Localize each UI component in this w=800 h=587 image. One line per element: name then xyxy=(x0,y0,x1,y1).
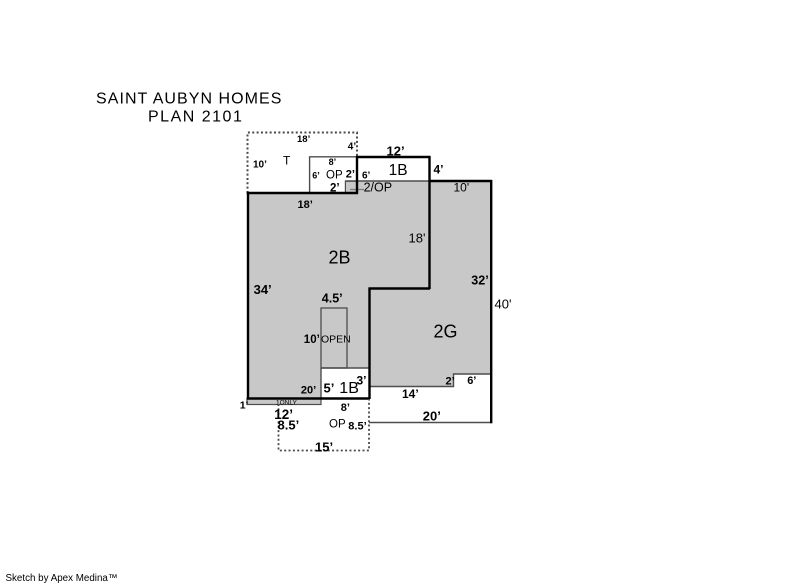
svg-text:8.5’: 8.5’ xyxy=(348,421,366,433)
svg-text:4’: 4’ xyxy=(434,162,444,176)
svg-text:OP: OP xyxy=(326,169,343,181)
svg-text:2’: 2’ xyxy=(446,375,455,387)
svg-text:3’: 3’ xyxy=(357,374,367,388)
svg-text:8’: 8’ xyxy=(341,402,350,414)
svg-text:5’: 5’ xyxy=(324,380,335,395)
svg-text:4.5’: 4.5’ xyxy=(322,292,343,306)
svg-text:20’: 20’ xyxy=(423,409,441,424)
svg-text:10’: 10’ xyxy=(304,334,320,346)
svg-text:8.5’: 8.5’ xyxy=(278,418,300,433)
svg-text:14’: 14’ xyxy=(402,387,419,401)
svg-text:Sketch by Apex Medina™: Sketch by Apex Medina™ xyxy=(6,573,118,584)
svg-text:4’: 4’ xyxy=(348,141,357,152)
svg-text:32’: 32’ xyxy=(471,273,488,287)
svg-text:15’: 15’ xyxy=(315,440,333,455)
svg-text:1’: 1’ xyxy=(240,400,249,412)
svg-text:20’: 20’ xyxy=(301,385,316,397)
svg-text:10’: 10’ xyxy=(253,159,267,170)
svg-text:40': 40' xyxy=(495,297,512,312)
svg-text:18’: 18’ xyxy=(298,199,313,211)
svg-text:OPEN: OPEN xyxy=(321,334,351,346)
svg-text:PLAN 2101: PLAN 2101 xyxy=(148,109,243,126)
svg-text:SAINT AUBYN HOMES: SAINT AUBYN HOMES xyxy=(96,91,282,108)
svg-text:2/OP: 2/OP xyxy=(364,181,393,195)
svg-text:34’: 34’ xyxy=(254,282,272,297)
svg-text:2B: 2B xyxy=(329,248,351,268)
svg-text:2’: 2’ xyxy=(346,168,355,180)
svg-text:T: T xyxy=(283,154,291,168)
svg-text:8’: 8’ xyxy=(329,157,337,167)
svg-text:12’: 12’ xyxy=(387,143,405,158)
svg-text:2G: 2G xyxy=(434,322,458,342)
svg-text:10': 10' xyxy=(454,181,470,195)
svg-text:OP: OP xyxy=(329,418,346,430)
svg-text:6’: 6’ xyxy=(312,171,320,181)
svg-text:1B: 1B xyxy=(389,162,408,179)
svg-text:18’: 18’ xyxy=(297,134,310,145)
svg-text:18': 18' xyxy=(409,231,426,246)
svg-text:2’: 2’ xyxy=(330,183,340,195)
svg-text:6’: 6’ xyxy=(467,375,476,387)
